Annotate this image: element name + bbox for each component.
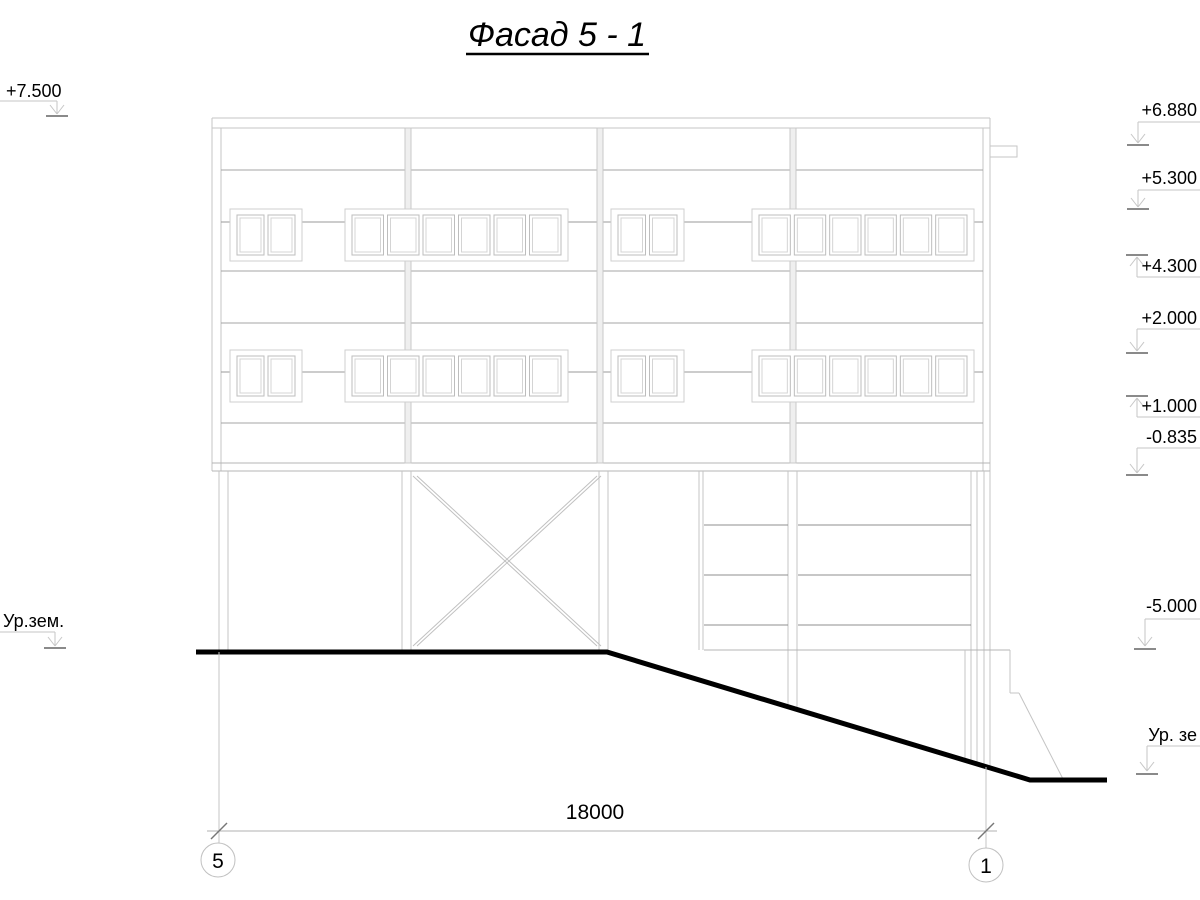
window-pane: [530, 215, 562, 255]
stair-lines: [704, 525, 1010, 650]
elevation-mark-label: -5.000: [1146, 596, 1197, 616]
drawing-sheet: Фасад 5 - 1: [0, 0, 1200, 900]
elevation-mark: +6.880: [1127, 100, 1200, 145]
elevation-mark: +2.000: [1126, 308, 1200, 353]
window-pane: [830, 215, 861, 255]
window-pane: [237, 356, 264, 396]
facade-mullions: [405, 128, 796, 463]
window-pane: [650, 356, 678, 396]
elevation-mark-label: Ур. зе: [1148, 725, 1197, 745]
window-pane: [268, 356, 295, 396]
roof-outlet: [990, 146, 1017, 157]
window-group: [611, 209, 684, 261]
pilotis-columns: [219, 471, 990, 768]
window-pane: [618, 356, 646, 396]
elevation-mark: Ур. зе: [1136, 725, 1200, 774]
elevation-mark-label: +7.500: [6, 81, 62, 101]
drawing-title: Фасад 5 - 1: [466, 16, 649, 54]
window-pane: [388, 215, 420, 255]
elevation-mark: -0.835: [1126, 427, 1200, 475]
ground-line: [196, 652, 1107, 780]
window-pane: [237, 215, 264, 255]
elevation-mark: -5.000: [1134, 596, 1200, 649]
foundation: [965, 650, 1063, 779]
facade-drawing: Фасад 5 - 1: [0, 0, 1200, 900]
window-group: [345, 209, 568, 261]
window-pane: [352, 215, 384, 255]
window-group: [230, 350, 302, 402]
window-pane: [865, 356, 896, 396]
elevation-mark-label: -0.835: [1146, 427, 1197, 447]
window-group: [345, 350, 568, 402]
window-pane: [459, 356, 491, 396]
elevation-mark-label: +4.300: [1141, 256, 1197, 276]
window-pane: [900, 215, 931, 255]
elevation-mark: Ур.зем.: [0, 611, 66, 648]
cross-bracing: [413, 476, 601, 646]
elevation-mark: +4.300: [1126, 255, 1200, 277]
window-pane: [794, 215, 825, 255]
window-pane: [830, 356, 861, 396]
window-pane: [388, 356, 420, 396]
window-pane: [423, 215, 455, 255]
elevation-mark-label: +2.000: [1141, 308, 1197, 328]
window-pane: [423, 356, 455, 396]
elevation-mark: +1.000: [1126, 396, 1200, 417]
window-pane: [759, 215, 790, 255]
window-pane: [530, 356, 562, 396]
elevation-mark-label: +6.880: [1141, 100, 1197, 120]
elevation-mark-label: Ур.зем.: [3, 611, 64, 631]
building-shell: [212, 118, 1017, 471]
window-pane: [494, 356, 526, 396]
window-group: [752, 209, 974, 261]
window-pane: [650, 215, 678, 255]
elevation-mark-label: +1.000: [1141, 396, 1197, 416]
page-title: Фасад 5 - 1: [468, 16, 646, 54]
elevation-mark: +5.300: [1127, 168, 1200, 209]
axis-label-5: 5: [212, 850, 224, 873]
window-pane: [865, 215, 896, 255]
window-group: [611, 350, 684, 402]
window-pane: [936, 215, 967, 255]
window-pane: [618, 215, 646, 255]
window-pane: [794, 356, 825, 396]
axis-label-1: 1: [980, 855, 992, 878]
elevation-mark: +7.500: [0, 81, 68, 116]
window-pane: [759, 356, 790, 396]
elevation-mark-label: +5.300: [1141, 168, 1197, 188]
dimension-value: 18000: [566, 801, 624, 824]
window-pane: [352, 356, 384, 396]
window-pane: [936, 356, 967, 396]
window-pane: [900, 356, 931, 396]
window-group: [752, 350, 974, 402]
window-pane: [459, 215, 491, 255]
window-pane: [494, 215, 526, 255]
dimension: 18000 5 1: [201, 652, 1003, 882]
window-group: [230, 209, 302, 261]
window-pane: [268, 215, 295, 255]
